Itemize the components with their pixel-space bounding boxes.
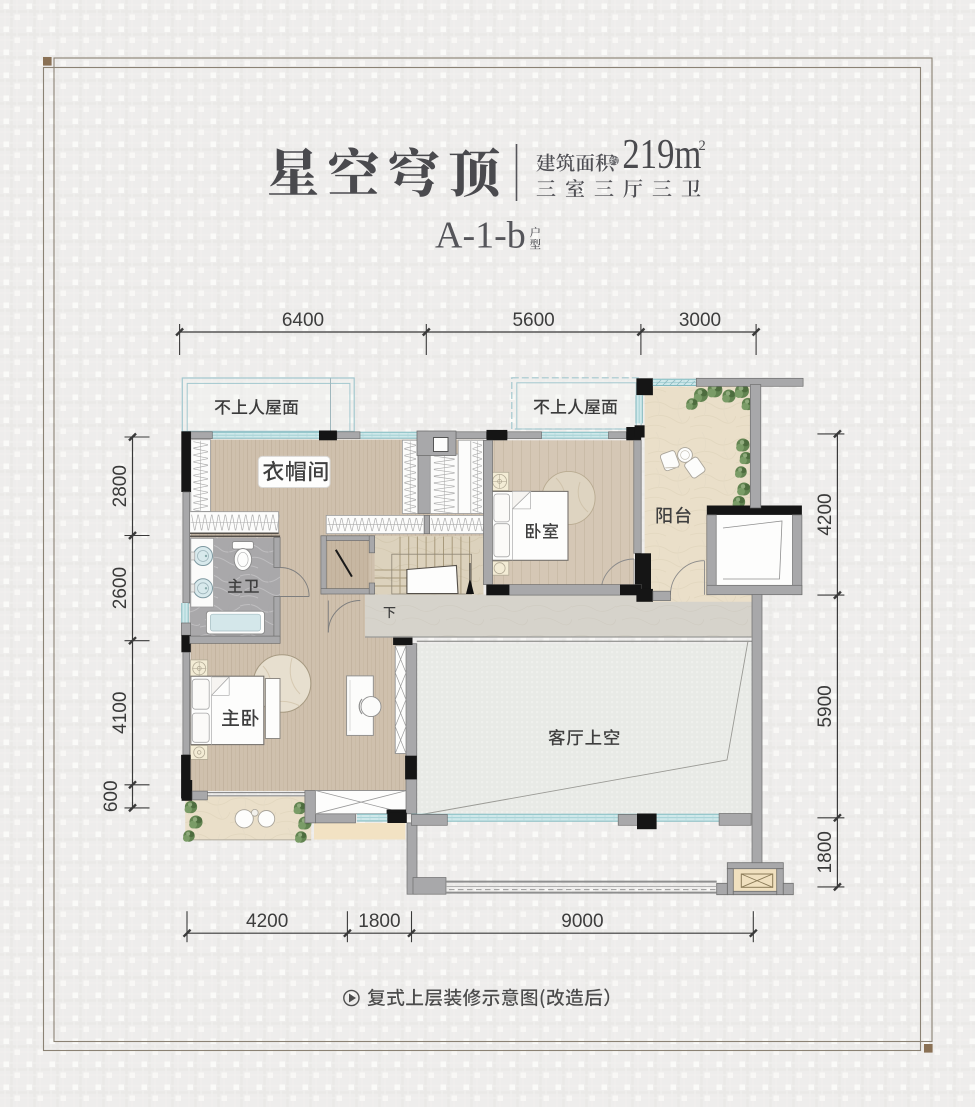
svg-text:4200: 4200 [246, 911, 288, 932]
svg-text:5600: 5600 [512, 310, 554, 331]
svg-text:3000: 3000 [679, 310, 721, 331]
svg-text:6400: 6400 [282, 310, 324, 331]
svg-text:1800: 1800 [358, 911, 400, 932]
svg-text:A-1-b: A-1-b [435, 215, 526, 257]
svg-text:2800: 2800 [110, 465, 131, 507]
svg-text:600: 600 [101, 780, 122, 812]
svg-text:1800: 1800 [815, 831, 836, 873]
svg-text:219m: 219m [622, 132, 701, 178]
svg-text:5900: 5900 [815, 685, 836, 727]
svg-text:4100: 4100 [110, 692, 131, 734]
svg-text:2: 2 [699, 138, 706, 154]
svg-text:4200: 4200 [815, 493, 836, 535]
svg-text:2600: 2600 [110, 567, 131, 609]
svg-text:9000: 9000 [561, 911, 603, 932]
